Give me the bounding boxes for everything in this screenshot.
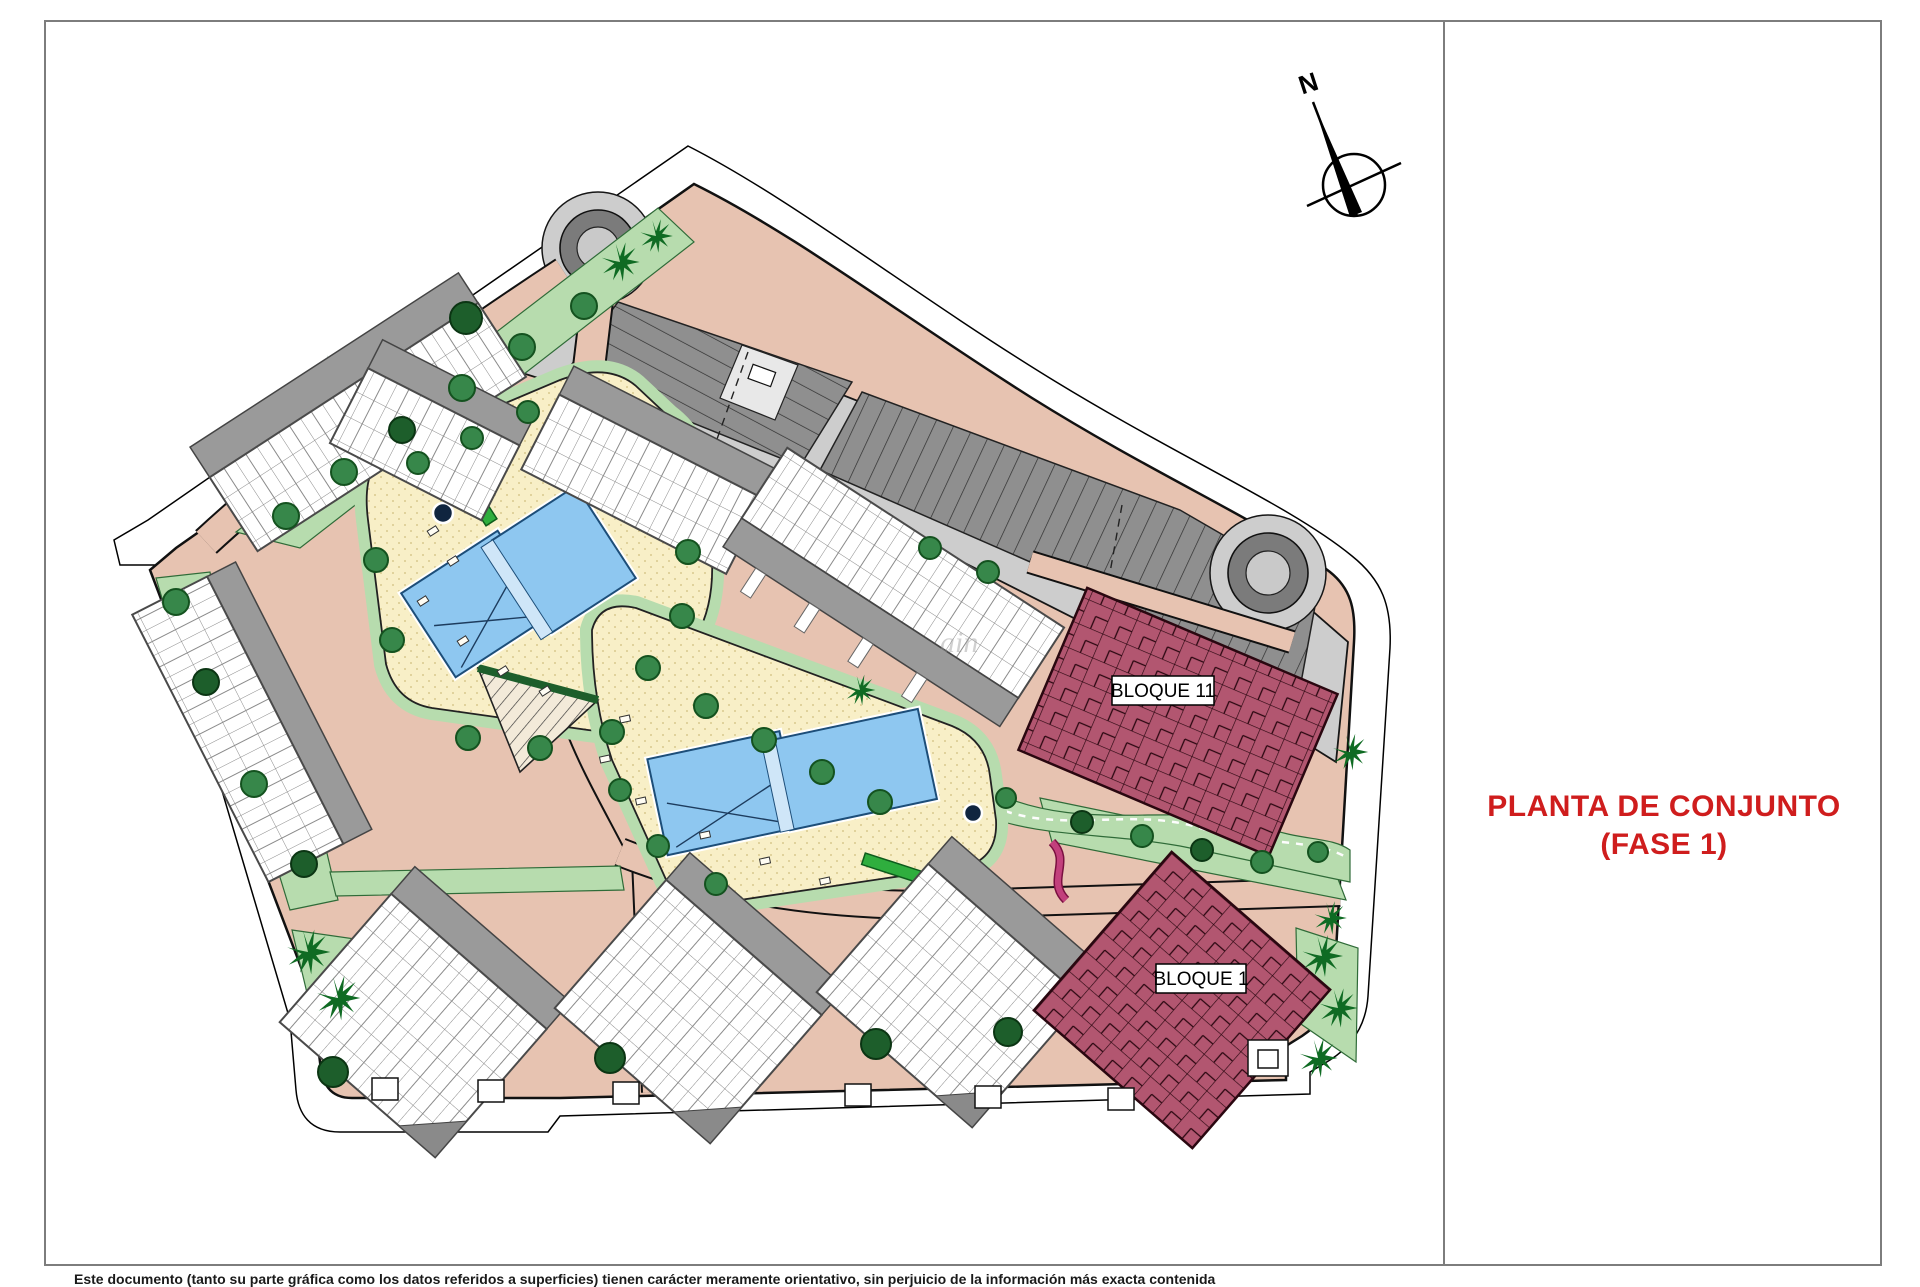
drawing-title-line1: PLANTA DE CONJUNTO bbox=[1450, 788, 1878, 826]
drawing-title: PLANTA DE CONJUNTO (FASE 1) bbox=[1450, 788, 1878, 864]
green-strip-bottom bbox=[330, 866, 624, 896]
bloque11-label: BLOQUE 11 bbox=[1111, 681, 1215, 702]
watermark-text: ain bbox=[940, 626, 978, 659]
jacuzzi-2 bbox=[964, 804, 982, 822]
compass-n-label: N bbox=[1295, 66, 1322, 100]
roundabout-east-island bbox=[1246, 551, 1290, 595]
jacuzzi-1 bbox=[433, 503, 453, 523]
drawing-title-line2: (FASE 1) bbox=[1450, 826, 1878, 864]
bloque1-label: BLOQUE 1 bbox=[1153, 969, 1248, 990]
site-plan-drawing: BLOQUE 11 BLOQUE 1 bbox=[0, 0, 1920, 1280]
compass-north: N bbox=[1295, 66, 1401, 217]
disclaimer-text: Este documento (tanto su parte gráfica c… bbox=[74, 1271, 1454, 1287]
